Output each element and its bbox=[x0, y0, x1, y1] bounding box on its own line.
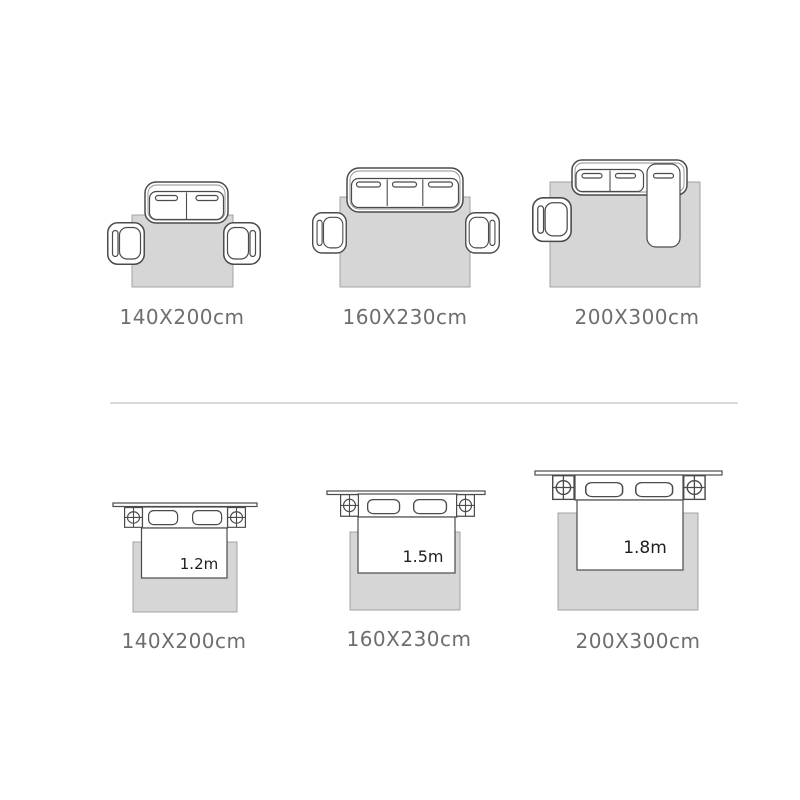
size-label: 140X200cm bbox=[119, 305, 244, 329]
nightstand-right-icon bbox=[228, 508, 246, 528]
rug-size-guide: 140X200cm 160X230cm bbox=[0, 0, 800, 800]
bed-rug-icon: 1.8m bbox=[530, 458, 730, 628]
size-label: 160X230cm bbox=[346, 627, 471, 651]
pillow-left-icon bbox=[368, 500, 400, 514]
size-label: 200X300cm bbox=[575, 629, 700, 653]
sofa-rug-option-140x200: 140X200cm bbox=[100, 155, 270, 330]
nightstand-right-icon bbox=[684, 476, 705, 500]
nightstand-right-icon bbox=[457, 495, 475, 517]
bed-mattress bbox=[577, 500, 683, 570]
size-label: 160X230cm bbox=[342, 305, 467, 329]
three-seat-sofa-icon bbox=[347, 168, 463, 212]
armchair-right-icon bbox=[466, 213, 500, 253]
sofa-rug-option-200x300: 200X300cm bbox=[520, 148, 720, 333]
bed-width-label: 1.8m bbox=[623, 538, 667, 558]
pillow-left-icon bbox=[586, 483, 623, 497]
nightstand-left-icon bbox=[125, 508, 143, 528]
three-seat-sofa-rug-icon bbox=[295, 150, 505, 295]
bed-rug-option-160x230: 1.5m 160X230cm bbox=[310, 478, 500, 660]
two-seat-sofa-icon bbox=[145, 182, 228, 223]
armchair-left-icon bbox=[533, 198, 571, 242]
bed-width-label: 1.2m bbox=[180, 555, 218, 573]
bed-width-label: 1.5m bbox=[402, 547, 443, 566]
armchair-left-icon bbox=[313, 213, 347, 253]
bed-rug-option-200x300: 1.8m 200X300cm bbox=[530, 458, 730, 658]
two-seat-sofa-rug-icon bbox=[100, 155, 270, 295]
sectional-sofa-rug-icon bbox=[520, 148, 720, 298]
pillow-right-icon bbox=[414, 500, 447, 514]
rug-shape bbox=[132, 215, 233, 287]
armchair-right-icon bbox=[224, 223, 261, 265]
pillow-left-icon bbox=[149, 511, 178, 525]
bed-rug-option-140x200: 1.2m 140X200cm bbox=[100, 490, 270, 660]
size-label: 140X200cm bbox=[121, 629, 246, 653]
size-label: 200X300cm bbox=[574, 305, 699, 329]
wall-line bbox=[113, 503, 257, 507]
pillow-right-icon bbox=[636, 483, 673, 497]
wall-line bbox=[535, 471, 722, 475]
sofa-rug-option-160x230: 160X230cm bbox=[295, 150, 505, 330]
nightstand-left-icon bbox=[553, 476, 574, 500]
bed-rug-icon: 1.2m bbox=[100, 490, 270, 625]
armchair-left-icon bbox=[108, 223, 145, 265]
section-divider bbox=[110, 402, 738, 404]
pillow-right-icon bbox=[193, 511, 222, 525]
nightstand-left-icon bbox=[341, 495, 359, 517]
bed-rug-icon: 1.5m bbox=[310, 478, 500, 628]
